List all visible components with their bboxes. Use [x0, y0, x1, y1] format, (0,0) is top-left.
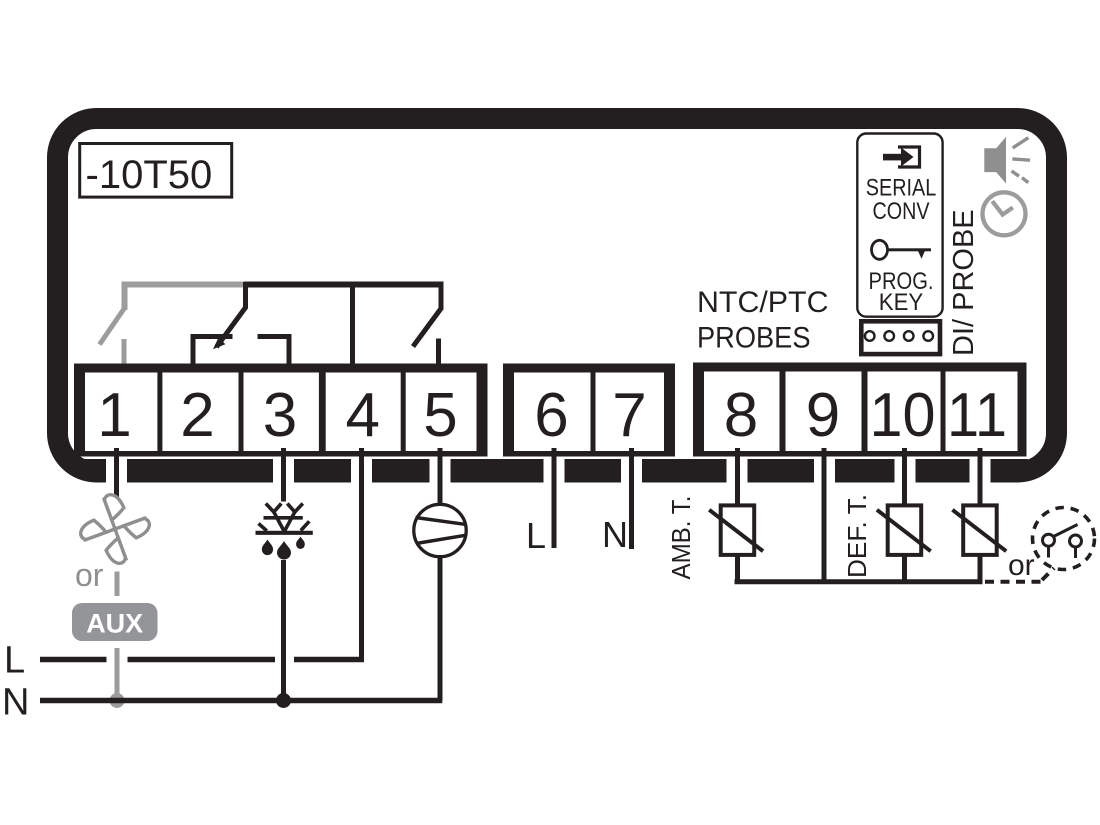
- svg-text:DEF. T.: DEF. T.: [842, 494, 872, 578]
- svg-text:or: or: [1008, 549, 1035, 582]
- svg-text:10: 10: [870, 381, 936, 450]
- svg-text:-10T50: -10T50: [86, 153, 213, 197]
- svg-text:4: 4: [346, 381, 380, 450]
- svg-text:3: 3: [263, 381, 297, 450]
- svg-text:L: L: [526, 515, 546, 556]
- svg-text:7: 7: [612, 381, 646, 450]
- svg-text:NTC/PTC: NTC/PTC: [697, 286, 829, 319]
- svg-text:1: 1: [97, 381, 131, 450]
- svg-text:6: 6: [534, 381, 568, 450]
- svg-text:5: 5: [423, 381, 457, 450]
- svg-text:or: or: [75, 557, 104, 593]
- svg-text:PROBES: PROBES: [697, 322, 811, 355]
- svg-text:11: 11: [947, 381, 1007, 450]
- svg-text:2: 2: [180, 381, 214, 450]
- svg-text:KEY: KEY: [879, 289, 924, 316]
- svg-text:AUX: AUX: [86, 609, 143, 639]
- svg-text:9: 9: [806, 381, 840, 450]
- svg-text:DI/ PROBE: DI/ PROBE: [948, 209, 980, 356]
- svg-text:N: N: [602, 514, 628, 555]
- svg-text:L: L: [4, 640, 25, 682]
- svg-text:AMB. T.: AMB. T.: [666, 496, 696, 580]
- svg-text:N: N: [2, 682, 29, 724]
- svg-text:CONV: CONV: [873, 198, 930, 225]
- svg-text:8: 8: [724, 381, 758, 450]
